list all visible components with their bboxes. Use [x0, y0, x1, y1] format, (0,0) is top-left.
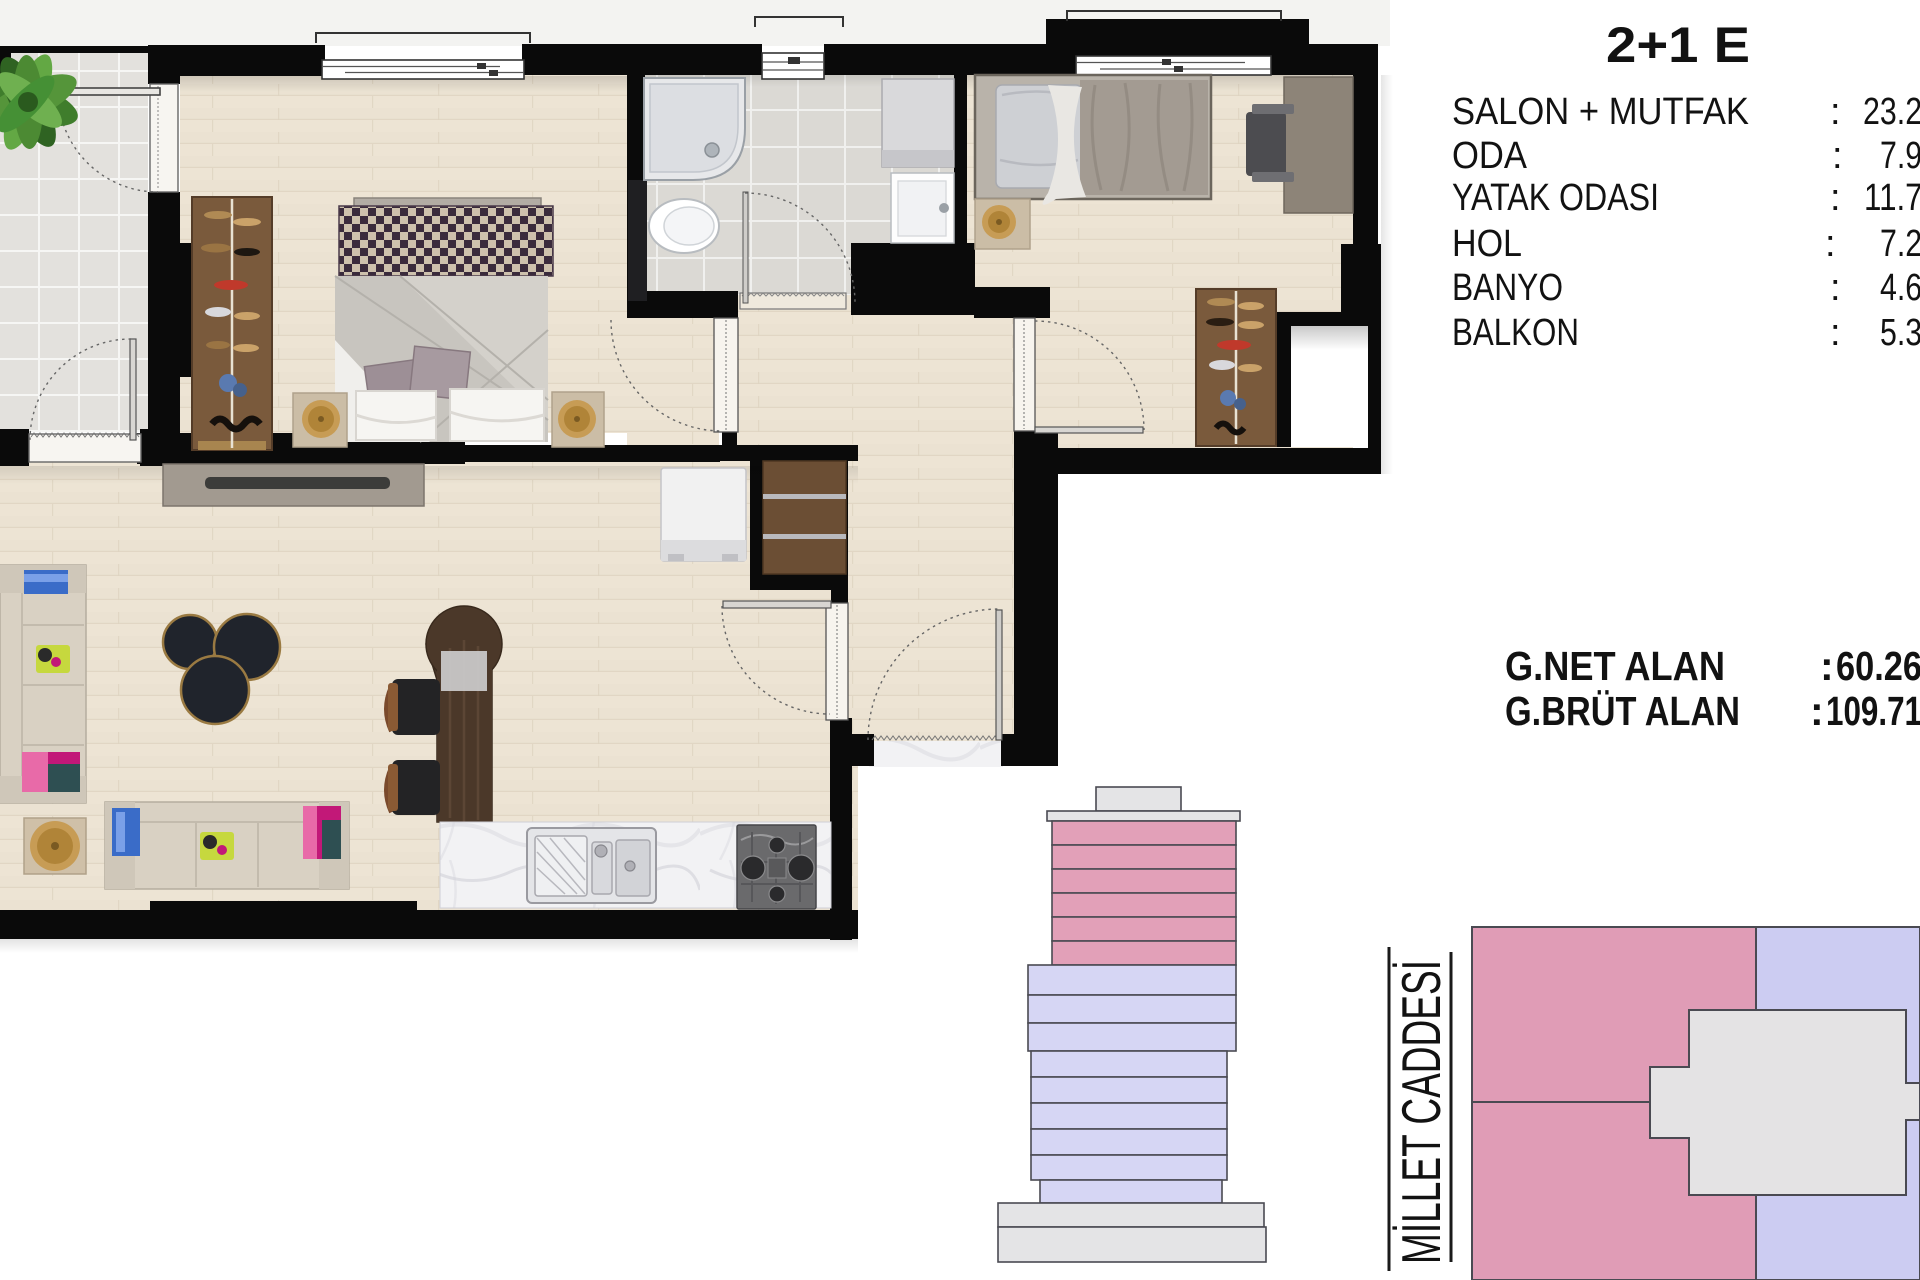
svg-text:HOL: HOL [1452, 223, 1522, 265]
svg-text:23.25: 23.25 [1863, 91, 1920, 133]
svg-text:G.BRÜT ALAN: G.BRÜT ALAN [1505, 688, 1740, 734]
svg-text:BALKON: BALKON [1452, 312, 1579, 354]
svg-text:109.71: 109.71 [1826, 688, 1920, 734]
svg-text:5.35: 5.35 [1880, 312, 1920, 354]
svg-text::: : [1830, 312, 1841, 354]
svg-text:4.65: 4.65 [1880, 267, 1920, 309]
svg-text::: : [1810, 688, 1824, 734]
svg-text::: : [1830, 91, 1841, 133]
svg-text::: : [1830, 177, 1841, 219]
svg-text:MİLLET CADDESİ: MİLLET CADDESİ [1390, 960, 1452, 1264]
svg-text:7.95: 7.95 [1880, 135, 1920, 177]
svg-text:60.26: 60.26 [1836, 643, 1920, 689]
svg-text:BANYO: BANYO [1452, 267, 1563, 309]
svg-text:G.NET ALAN: G.NET ALAN [1505, 643, 1725, 689]
svg-text:2+1 E: 2+1 E [1606, 17, 1750, 73]
svg-text::: : [1830, 267, 1841, 309]
svg-text:SALON + MUTFAK: SALON + MUTFAK [1452, 91, 1749, 133]
svg-text::: : [1832, 135, 1843, 177]
svg-text:YATAK ODASI: YATAK ODASI [1452, 177, 1659, 219]
svg-text::: : [1820, 643, 1834, 689]
svg-text:ODA: ODA [1452, 135, 1528, 177]
svg-text::: : [1825, 223, 1836, 265]
svg-text:11.75: 11.75 [1864, 177, 1920, 219]
svg-text:7.25: 7.25 [1880, 223, 1920, 265]
